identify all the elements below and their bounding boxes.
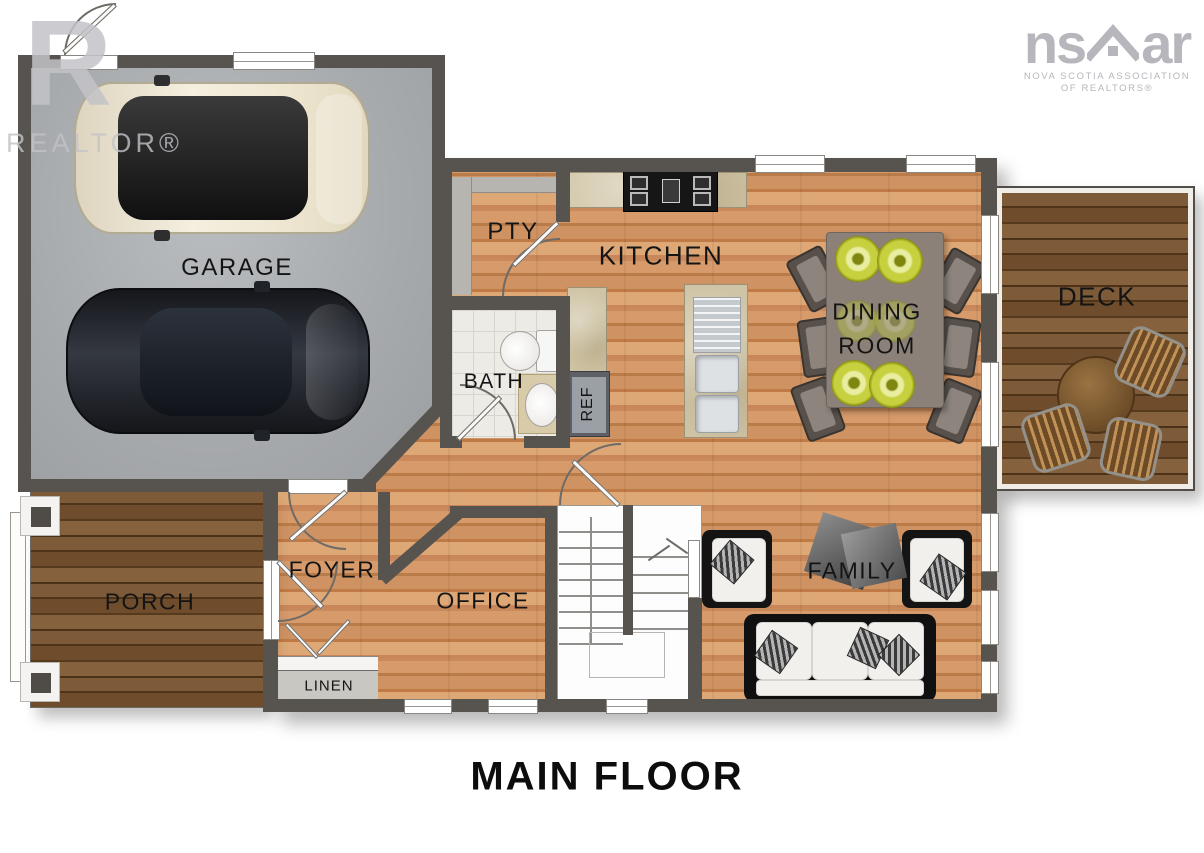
wall (346, 479, 376, 492)
deck-chair (1098, 415, 1165, 483)
window (981, 513, 999, 572)
room-label-office: OFFICE (436, 588, 529, 615)
wall-stair-divider (623, 505, 633, 635)
window (755, 155, 825, 173)
burner (693, 176, 711, 190)
room-label-kitchen: KITCHEN (599, 241, 724, 272)
window (981, 661, 999, 694)
porch-post-core (31, 673, 51, 693)
suv-hood-highlight (316, 94, 362, 224)
nsar-house-icon (1087, 16, 1139, 67)
wall (688, 598, 702, 712)
wall (524, 436, 570, 448)
kitchen-counter-side (567, 287, 607, 372)
wall (272, 479, 288, 492)
nsar-logo: ns ar NOVA SCOTIA ASSOCIATION OF REALTOR… (1012, 16, 1202, 94)
closet-threshold (278, 656, 378, 670)
wall-exterior-bottom (263, 699, 404, 712)
suv-mirror-bottom (154, 230, 170, 241)
room-label-bath: BATH (464, 370, 524, 394)
sink-basin-2 (695, 395, 739, 433)
room-label-pantry: PTY (487, 218, 538, 246)
realtor-r-logo: R (24, 2, 112, 124)
window (606, 699, 648, 714)
wall (18, 479, 272, 492)
wall (981, 292, 997, 362)
room-label-porch: PORCH (105, 589, 196, 616)
window (233, 52, 315, 70)
wall (981, 570, 997, 590)
wall (450, 506, 557, 518)
room-label-garage: GARAGE (181, 254, 293, 282)
wall (263, 492, 278, 560)
porch-post-core (31, 507, 51, 527)
toilet-bowl (500, 331, 540, 371)
vanity-basin (525, 383, 559, 427)
room-label-deck: DECK (1058, 282, 1136, 313)
nsar-logo-line1: NOVA SCOTIA ASSOCIATION (1012, 71, 1202, 82)
nsar-logo-line2: OF REALTORS® (1012, 83, 1202, 94)
wall (981, 643, 997, 661)
stair-railing (688, 540, 700, 598)
place-setting (869, 362, 915, 408)
wall (263, 638, 278, 712)
porch-post (20, 496, 60, 536)
sedan-roof-glass (140, 308, 292, 416)
sedan-mirror-bottom (254, 430, 270, 441)
sink-drainboard (693, 297, 741, 353)
place-setting (835, 236, 881, 282)
kitchen-island (684, 284, 748, 438)
sink-basin-1 (695, 355, 739, 393)
realtor-watermark-label: REALTOR® (6, 128, 183, 159)
burner (630, 192, 648, 206)
window (488, 699, 538, 714)
nsar-logo-ns: ns (1024, 21, 1085, 67)
window (906, 155, 976, 173)
room-label-linen: LINEN (304, 678, 353, 695)
room-label-dining-line1: DINING (832, 299, 922, 326)
cooktop (623, 170, 718, 212)
burner (693, 192, 711, 206)
window (404, 699, 452, 714)
place-setting (877, 238, 923, 284)
wall (981, 158, 997, 215)
wall (440, 296, 570, 310)
burner-center (662, 179, 680, 203)
pantry-shelf-left (452, 177, 472, 295)
nsar-logo-ar: ar (1141, 21, 1190, 67)
wall (981, 445, 997, 513)
wall (545, 506, 557, 712)
sedan-mirror-top (254, 281, 270, 292)
window (981, 362, 999, 447)
porch-edge (10, 512, 26, 682)
room-label-fridge: REF (579, 387, 597, 422)
room-label-family: FAMILY (807, 558, 896, 585)
plan-title: MAIN FLOOR (470, 755, 743, 800)
wall (556, 165, 570, 222)
wall (556, 296, 570, 448)
sedan-hood-highlight (306, 304, 358, 420)
suv-mirror-top (154, 75, 170, 86)
sedan-car (66, 288, 370, 434)
wall (450, 699, 488, 712)
deck-door-glass (981, 215, 999, 294)
burner (630, 176, 648, 190)
porch-post (20, 662, 60, 702)
stair-center-line (590, 517, 592, 645)
room-label-foyer: FOYER (289, 557, 376, 584)
floor-plan-canvas: GARAGE PTY KITCHEN DINING ROOM DECK BATH… (0, 0, 1204, 853)
window (981, 590, 999, 645)
stair-landing-outline (589, 632, 665, 678)
room-label-dining-line2: ROOM (838, 333, 916, 360)
